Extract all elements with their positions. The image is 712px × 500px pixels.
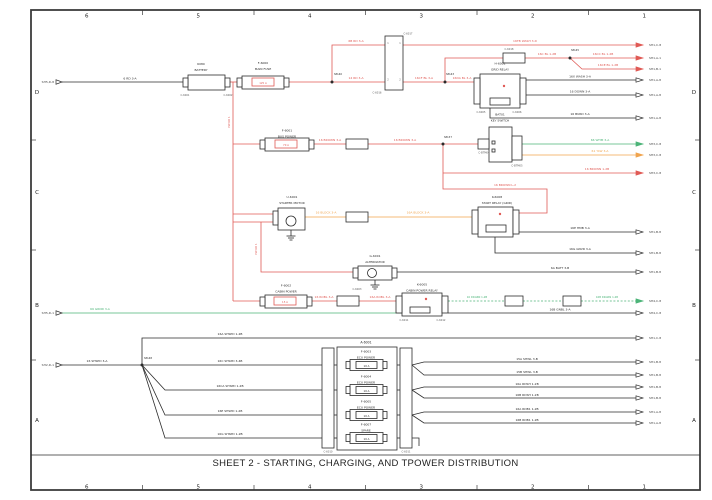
grid-col-label-bottom: 6	[85, 485, 89, 491]
wire-label: 16CF BL 3-A	[415, 76, 434, 80]
machine-symbol	[286, 216, 296, 226]
grid-row-label-right: A	[692, 418, 696, 424]
offsheet-ref-label: SH1,B-8	[649, 385, 661, 389]
offsheet-ref-arrow	[56, 363, 62, 367]
wire-label: C-6017	[403, 32, 412, 36]
splice-dot	[331, 81, 334, 84]
offsheet-ref-arrow	[636, 67, 643, 71]
wire-label: C-6016	[372, 91, 381, 95]
component-box	[346, 412, 350, 419]
offsheet-ref-arrow	[636, 396, 643, 400]
wire-label: 16A RDB1 1-2B	[515, 407, 538, 411]
wire-label: 16A BLOCK 3-A	[407, 211, 431, 215]
wire-label: 16C BL 1-2B	[538, 52, 557, 56]
wire-label: 10 A	[364, 364, 370, 368]
component-box	[383, 387, 387, 394]
sheet-title: SHEET 2 - STARTING, CHARGING, AND TPOWER…	[31, 458, 700, 469]
offsheet-ref-arrow	[636, 373, 643, 377]
wire-label: 16X WASH 3-A	[569, 75, 592, 79]
component-box	[396, 296, 402, 313]
wire-label: 16 BROWN L-2	[494, 183, 516, 187]
relay-contact-dot	[499, 213, 501, 215]
offsheet-ref-label: SH1,B-8	[649, 396, 661, 400]
wire-label: 16CC BL 1-2B	[593, 52, 614, 56]
wire-label: 16B RDB1 1-2B	[515, 418, 538, 422]
component-box	[273, 211, 278, 225]
wire-label: U-6001	[287, 195, 298, 199]
offsheet-ref-label: SH1,B-8	[649, 251, 661, 255]
wire-label: PW RD 1	[227, 116, 231, 128]
component-box	[237, 78, 242, 87]
component-box	[309, 140, 314, 149]
wire-label: 16B RDSH 1-2B	[515, 393, 538, 397]
wire-label: 10 A	[364, 437, 370, 441]
grid-col-label-top: 3	[420, 14, 424, 20]
wire-label: 6B RD 3-A	[348, 39, 364, 43]
wire-label: C-BTM05	[511, 164, 523, 168]
component-box	[346, 212, 368, 222]
wire-label: 16 ROBL 3-A	[315, 295, 335, 299]
wire	[495, 237, 636, 253]
wire-label: C-6005	[476, 110, 485, 114]
wire-label: C-BTM04	[478, 151, 490, 155]
wire-label: C-6012	[436, 318, 445, 322]
offsheet-ref-label: SH1,B-8	[649, 270, 661, 274]
grid-row-label-right: C	[692, 190, 696, 196]
wire-label: 61 YLW 3-A	[592, 149, 610, 153]
offsheet-ref-arrow	[636, 421, 643, 425]
offsheet-ref-label: SH1,C-8	[649, 43, 661, 47]
component-box	[520, 78, 526, 104]
wire-label: 16 BURD 3-A	[570, 112, 590, 116]
wire	[412, 438, 419, 446]
grid-col-label-bottom: 2	[531, 485, 535, 491]
component-box	[400, 348, 412, 448]
wire-label: SPL68	[144, 356, 152, 360]
grid-col-label-bottom: 1	[643, 485, 647, 491]
component-box	[512, 136, 522, 160]
offsheet-ref-label: SH1,A-8	[649, 116, 661, 120]
wire-label: ECU POWER	[357, 406, 375, 410]
wire-label: 16A SHSPD 1-2B	[218, 332, 243, 336]
component-box	[284, 78, 289, 87]
wire-label: 16G SHSPD 1-2B	[217, 432, 242, 436]
offsheet-ref-arrow	[636, 116, 643, 120]
component-box	[337, 296, 359, 306]
grid-row-label-right: D	[692, 90, 696, 96]
wire-label: 16 DKGRN 1-2B	[467, 295, 488, 299]
component-box	[346, 435, 350, 442]
wire-label: 6A BATT 3-B	[551, 266, 569, 270]
grid-row-label-left: D	[35, 90, 39, 96]
wire-label: 6 RD 3-A	[123, 77, 137, 81]
wire-label: GRID RELAY	[491, 68, 509, 72]
wire-label: C-6002	[223, 93, 232, 97]
grid-row-label-left: B	[35, 303, 39, 309]
wire-label: SPL57	[444, 135, 452, 139]
component-box	[383, 362, 387, 369]
wire-label: H-6002	[495, 62, 506, 66]
wire-label: MAIN FUSE	[255, 67, 272, 71]
component-box	[383, 435, 387, 442]
wire-label: 16E HMB 3-A	[570, 226, 590, 230]
wire-label: 10 A	[364, 389, 370, 393]
wire-label: A-6001	[360, 341, 371, 345]
wire-label: STARTER MOTOR	[279, 201, 304, 205]
wire-label: C-6010	[323, 450, 332, 454]
splice-dot	[444, 81, 447, 84]
offsheet-ref-arrow	[636, 251, 643, 255]
offsheet-ref-arrow	[636, 171, 643, 175]
offsheet-ref-arrow	[636, 311, 643, 315]
component-box	[563, 296, 581, 306]
wire	[412, 387, 636, 390]
wire-label: C-6001	[180, 93, 189, 97]
component-box	[392, 268, 397, 278]
grid-row-label-left: A	[35, 418, 39, 424]
offsheet-ref-label: SH3,C-8	[649, 171, 661, 175]
offsheet-ref-label: SH1,B-8	[649, 230, 661, 234]
component-box	[307, 297, 312, 306]
wire-label: F-6005	[361, 400, 372, 404]
wire-label: BAT01	[495, 113, 505, 117]
component-box	[183, 78, 188, 87]
component-box	[346, 387, 350, 394]
offsheet-ref-label: SH1,C-8	[649, 336, 661, 340]
wire-label: 70 A	[283, 143, 289, 147]
wire-label: K-6005	[417, 283, 427, 287]
component-box	[490, 98, 510, 105]
wire-label: 16 DGWN 3-A	[570, 90, 591, 94]
component-box	[486, 225, 506, 232]
schematic-canvas: 665544332211DDCCBBAA6 RD 3-A6080BATTERYC…	[0, 0, 712, 500]
grid-col-label-bottom: 5	[197, 485, 201, 491]
offsheet-ref-arrow	[636, 336, 643, 340]
wire-label: BATTERY	[194, 68, 207, 72]
grid-col-label-bottom: 4	[308, 485, 312, 491]
wire-label: 15A SHWL 3-B	[516, 357, 538, 361]
wire-label: F-6000	[258, 61, 269, 65]
wire	[412, 362, 636, 365]
wire-label: 16 BROWN 3-A	[394, 138, 417, 142]
offsheet-ref-arrow	[636, 410, 643, 414]
wire-label: 16 SHSPD 3-A	[87, 359, 109, 363]
grid-col-label-bottom: 3	[420, 485, 424, 491]
wire-label: 14 RD 3-A	[348, 76, 364, 80]
wire	[261, 222, 353, 272]
wire-label: ECU POWER	[357, 356, 375, 360]
component-box	[346, 362, 350, 369]
component-box	[492, 141, 495, 144]
offsheet-ref-arrow	[636, 78, 643, 82]
wire-label: ECU POWER	[357, 381, 375, 385]
splice-dot	[569, 57, 572, 60]
wire-label: C-6003	[352, 287, 361, 291]
wire-label: F-6002	[281, 284, 292, 288]
offsheet-ref-label: SH1,B-8	[649, 373, 661, 377]
wire-label: K-6008	[492, 195, 502, 199]
machine-symbol	[368, 269, 377, 278]
component-box	[505, 296, 523, 306]
wire-label: BUS POWER	[278, 135, 296, 139]
wire-label: 66 WHM 3-A	[591, 138, 610, 142]
component-box	[478, 139, 489, 149]
offsheet-ref-arrow	[636, 142, 643, 146]
wire-label: 16DA BL 3-A	[453, 76, 473, 80]
grid-col-label-top: 1	[643, 14, 647, 20]
offsheet-ref-arrow	[636, 43, 643, 47]
component-box	[225, 78, 230, 87]
wire-label: SPL65	[571, 48, 579, 52]
wire-label: G-6001	[369, 254, 380, 258]
splice-dot	[442, 143, 445, 146]
offsheet-ref-label: SH3,C-8	[649, 142, 661, 146]
wire-label: 16 BLOCK 3-A	[316, 211, 338, 215]
wire-label: 16 BROWN 3-A	[319, 138, 342, 142]
grid-col-label-top: 5	[197, 14, 201, 20]
wire-label: F-6001	[282, 129, 293, 133]
component-box	[260, 140, 265, 149]
offsheet-ref-label: SH1,A-8	[649, 421, 661, 425]
offsheet-ref-arrow	[636, 360, 643, 364]
wire-label: 125 A	[259, 81, 267, 85]
component-box	[410, 307, 430, 313]
wire-label: 15 A	[282, 300, 288, 304]
component-box	[472, 210, 478, 234]
wire-label: 16A ROBL 3-A	[370, 295, 392, 299]
wire-label: C-6011	[401, 450, 410, 454]
wire-label: 16G GNVR 3-A	[569, 247, 592, 251]
wire-label: START RELAY (GRID)	[482, 201, 512, 205]
offsheet-ref-label: SH1,A-1	[649, 56, 661, 60]
relay-contact-dot	[425, 298, 427, 300]
wire	[142, 365, 322, 438]
grid-col-label-top: 2	[531, 14, 535, 20]
wire-label: 16B DKGRN 1-2B	[596, 295, 618, 299]
wire-label: 15B SHWL 3-B	[516, 370, 538, 374]
wire-label: 16CE BL 1-2B	[598, 63, 618, 67]
offsheet-ref-arrow	[636, 230, 643, 234]
wire	[412, 412, 636, 415]
wire-label: C-6011	[399, 318, 408, 322]
offsheet-ref-label: SH1,B-1	[649, 67, 661, 71]
wire-label: F-6004	[361, 375, 372, 379]
grid-col-label-top: 6	[85, 14, 89, 20]
component-box	[478, 207, 513, 237]
component-box	[260, 297, 265, 306]
relay-contact-dot	[503, 85, 505, 87]
offsheet-ref-arrow	[636, 56, 643, 60]
component-box	[474, 78, 480, 104]
offsheet-ref-label: SH2,D-1	[42, 363, 54, 367]
wire-label: C-6006	[512, 110, 521, 114]
offsheet-ref-arrow	[636, 385, 643, 389]
wire-label: 16A RDSH 1-2B	[515, 382, 538, 386]
component-box	[383, 412, 387, 419]
wiring-diagram-page: 665544332211DDCCBBAA6 RD 3-A6080BATTERYC…	[0, 0, 712, 500]
offsheet-ref-label: SH3,C-8	[649, 153, 661, 157]
wire-label: PW RD 1	[254, 243, 258, 255]
wire-label: 16 BROWN 1-2B	[585, 167, 609, 171]
component-box	[346, 139, 368, 149]
offsheet-ref-arrow	[56, 311, 62, 315]
wire-label: F-6007	[361, 423, 372, 427]
wire-label: 66 GRND 3-A	[90, 307, 111, 311]
component-box	[442, 296, 448, 313]
wire-label: 16E SHSPD 1-2B	[218, 409, 243, 413]
wire-label: KEY SWITCH	[491, 119, 509, 123]
offsheet-ref-label: SH4,C-8	[649, 299, 661, 303]
grid-row-label-left: C	[35, 190, 39, 196]
component-box	[492, 149, 495, 152]
offsheet-ref-arrow	[56, 80, 62, 84]
grid-row-label-right: B	[692, 303, 696, 309]
component-box	[322, 348, 334, 448]
offsheet-ref-arrow	[636, 299, 643, 303]
offsheet-ref-label: SH5,D-8	[42, 80, 54, 84]
component-box	[489, 127, 512, 162]
offsheet-ref-label: SH5,D-1	[42, 311, 54, 315]
wire-label: CABIN POWER RELAY	[406, 289, 438, 293]
offsheet-ref-label: SH1,A-8	[649, 78, 661, 82]
offsheet-ref-label: SH1,A-8	[649, 410, 661, 414]
offsheet-ref-label: SH1,B-8	[649, 360, 661, 364]
wire-label: 6080	[197, 62, 205, 66]
offsheet-ref-arrow	[636, 153, 643, 157]
splice-dot	[141, 364, 144, 367]
component-box	[353, 268, 358, 278]
wire-label: CABIN POWER	[275, 290, 296, 294]
wire-label: ALTERNATOR	[365, 260, 384, 264]
wire-label: SPL60	[334, 72, 342, 76]
grid-col-label-top: 4	[308, 14, 312, 20]
component-box	[513, 210, 519, 234]
component-box	[188, 75, 225, 90]
offsheet-ref-arrow	[636, 93, 643, 97]
offsheet-ref-label: SH1,A-8	[649, 93, 661, 97]
wire-label: 16CA SHSPD 1-2B	[216, 384, 243, 388]
offsheet-ref-label: SH4,C-8	[649, 311, 661, 315]
wire-label: C-6018	[504, 47, 513, 51]
wire-label: 16B GNBL 3-A	[549, 308, 571, 312]
wire-label: 10 A	[364, 414, 370, 418]
wire-label: 16C SHSPD 3-4B	[218, 359, 243, 363]
component-box	[503, 53, 525, 63]
offsheet-ref-arrow	[636, 270, 643, 274]
wire-label: 16TB WASH 3-D	[513, 39, 538, 43]
wire-label: F-6003	[361, 350, 372, 354]
wire-label: SPARE	[361, 429, 371, 433]
